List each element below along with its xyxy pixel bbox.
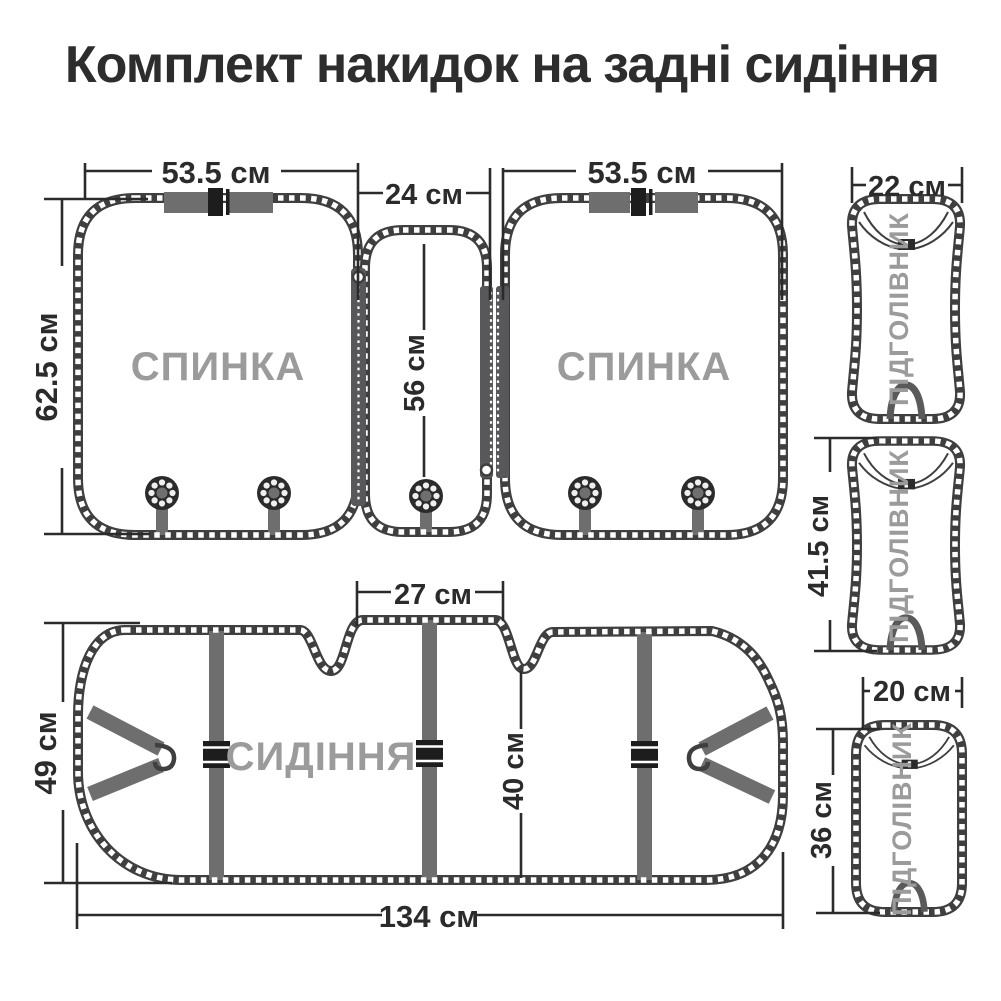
headrest-bottom-piece: ПІДГОЛІВНИК [856, 722, 962, 916]
backrest-right-label: СПИНКА [557, 345, 732, 389]
top-strap [655, 192, 698, 213]
fastener-disc [257, 476, 291, 510]
dim-value: 24 см [385, 179, 463, 211]
zipper-pull [481, 465, 492, 476]
fastener-disc [681, 476, 715, 510]
dim-value: 22 см [868, 171, 946, 203]
dim-value: 20 см [873, 676, 951, 708]
headrest-bottom-label: ПІДГОЛІВНИК [887, 722, 917, 916]
fastener-disc [568, 476, 602, 510]
diagram-svg: Комплект накидок на задні сидіння СПИНКА… [0, 0, 1001, 1001]
strap-buckle-bar [226, 189, 230, 215]
top-strap [229, 192, 273, 213]
backrest-left-piece: СПИНКА [78, 188, 358, 535]
strap-buckle [631, 741, 658, 768]
dim-value: 40 см [498, 732, 530, 810]
dim-value: 36 см [806, 781, 838, 859]
dim-value: 49 см [28, 711, 63, 794]
dimension-headrest-top-width: 22 см [852, 167, 962, 203]
dim-value: 53.5 см [161, 155, 270, 190]
headrest-top-label: ПІДГОЛІВНИК [884, 212, 914, 406]
dim-value: 134 см [379, 899, 480, 934]
dim-value: 56 см [399, 334, 431, 412]
top-strap [164, 192, 208, 213]
zipper-left [351, 268, 366, 506]
dim-value: 53.5 см [587, 155, 696, 190]
dim-value: 41.5 см [803, 495, 835, 597]
page-title: Комплект накидок на задні сидіння [65, 36, 939, 94]
top-strap [589, 192, 630, 213]
headrest-middle-piece: ПІДГОЛІВНИК [852, 441, 960, 650]
headrest-top-piece: ПІДГОЛІВНИК [852, 199, 960, 419]
backrest-right-piece: СПИНКА [505, 188, 783, 535]
strap-buckle-bar [649, 189, 653, 215]
backrest-left-label: СПИНКА [131, 345, 306, 389]
seat-label: СИДІННЯ [226, 735, 417, 779]
dim-value: 62.5 см [29, 312, 64, 421]
fastener-disc [145, 476, 179, 510]
zipper-right-double [480, 286, 509, 478]
strap-buckle [416, 740, 443, 767]
strap-buckle [208, 188, 223, 216]
strap-buckle [631, 188, 646, 216]
seat-cover-diagram-page: Комплект накидок на задні сидіння СПИНКА… [0, 0, 1001, 1001]
dim-value: 27 см [394, 579, 472, 611]
headrest-middle-label: ПІДГОЛІВНИК [884, 449, 914, 643]
seat-piece: СИДІННЯ [78, 620, 783, 880]
fastener-disc [409, 479, 443, 513]
